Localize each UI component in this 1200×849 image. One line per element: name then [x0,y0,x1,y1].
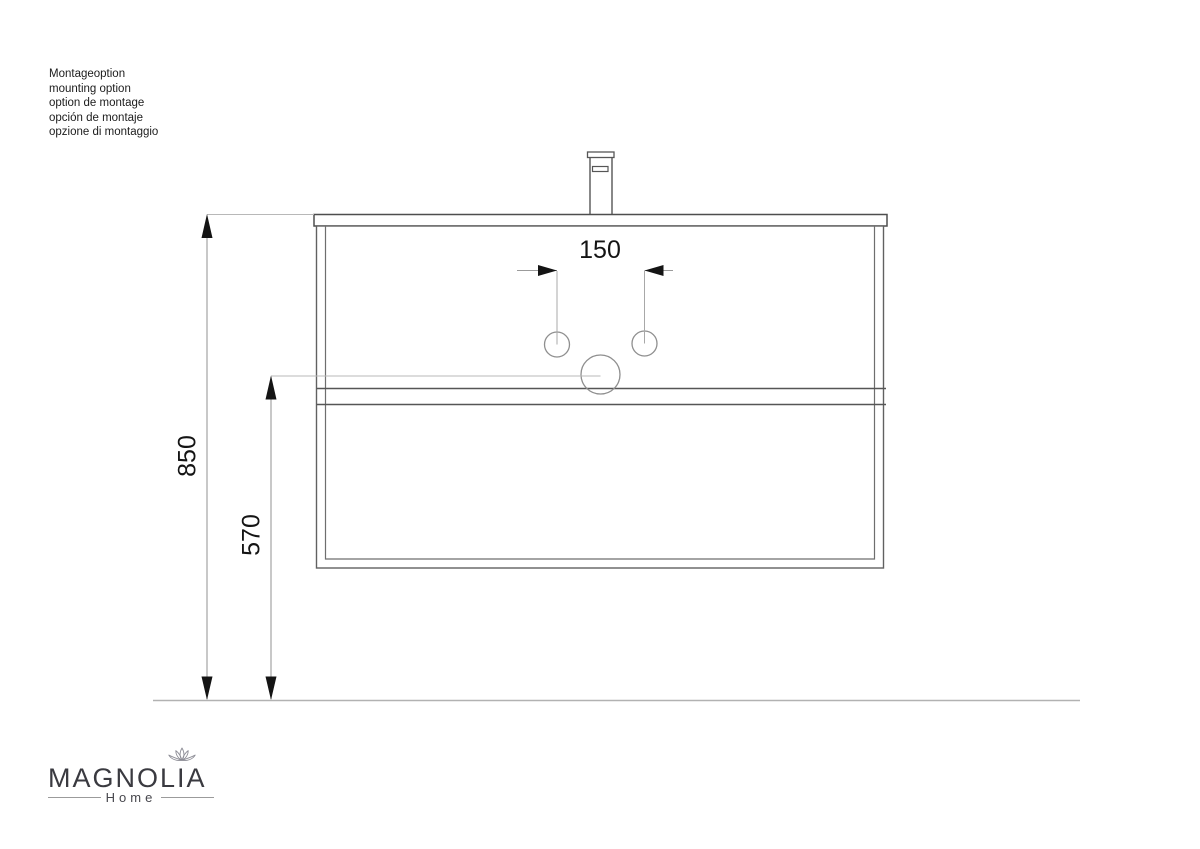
arrowhead-down [266,677,277,701]
rule-left [48,797,101,798]
brand-subtitle-row: Home [48,790,214,805]
faucet-icon [588,152,615,215]
rule-right [161,797,214,798]
dim-label-150: 150 [579,236,621,264]
cabinet-outer-outline [317,226,884,568]
countertop [314,215,887,227]
brand-subtitle: Home [106,790,157,805]
faucet-slot [593,167,609,172]
technical-drawing: 150 850 570 [0,0,1200,849]
page: Montageoption mounting option option de … [0,0,1200,849]
dimension-total-height: 850 [174,214,315,700]
dim-label-850: 850 [174,435,202,477]
arrowhead-up [266,376,277,400]
faucet-body [590,157,612,216]
dim-label-570: 570 [238,514,266,556]
arrowhead-up [202,214,213,238]
faucet-cap [588,152,615,158]
arrowhead-down [202,677,213,701]
magnolia-flower-icon [167,747,197,764]
